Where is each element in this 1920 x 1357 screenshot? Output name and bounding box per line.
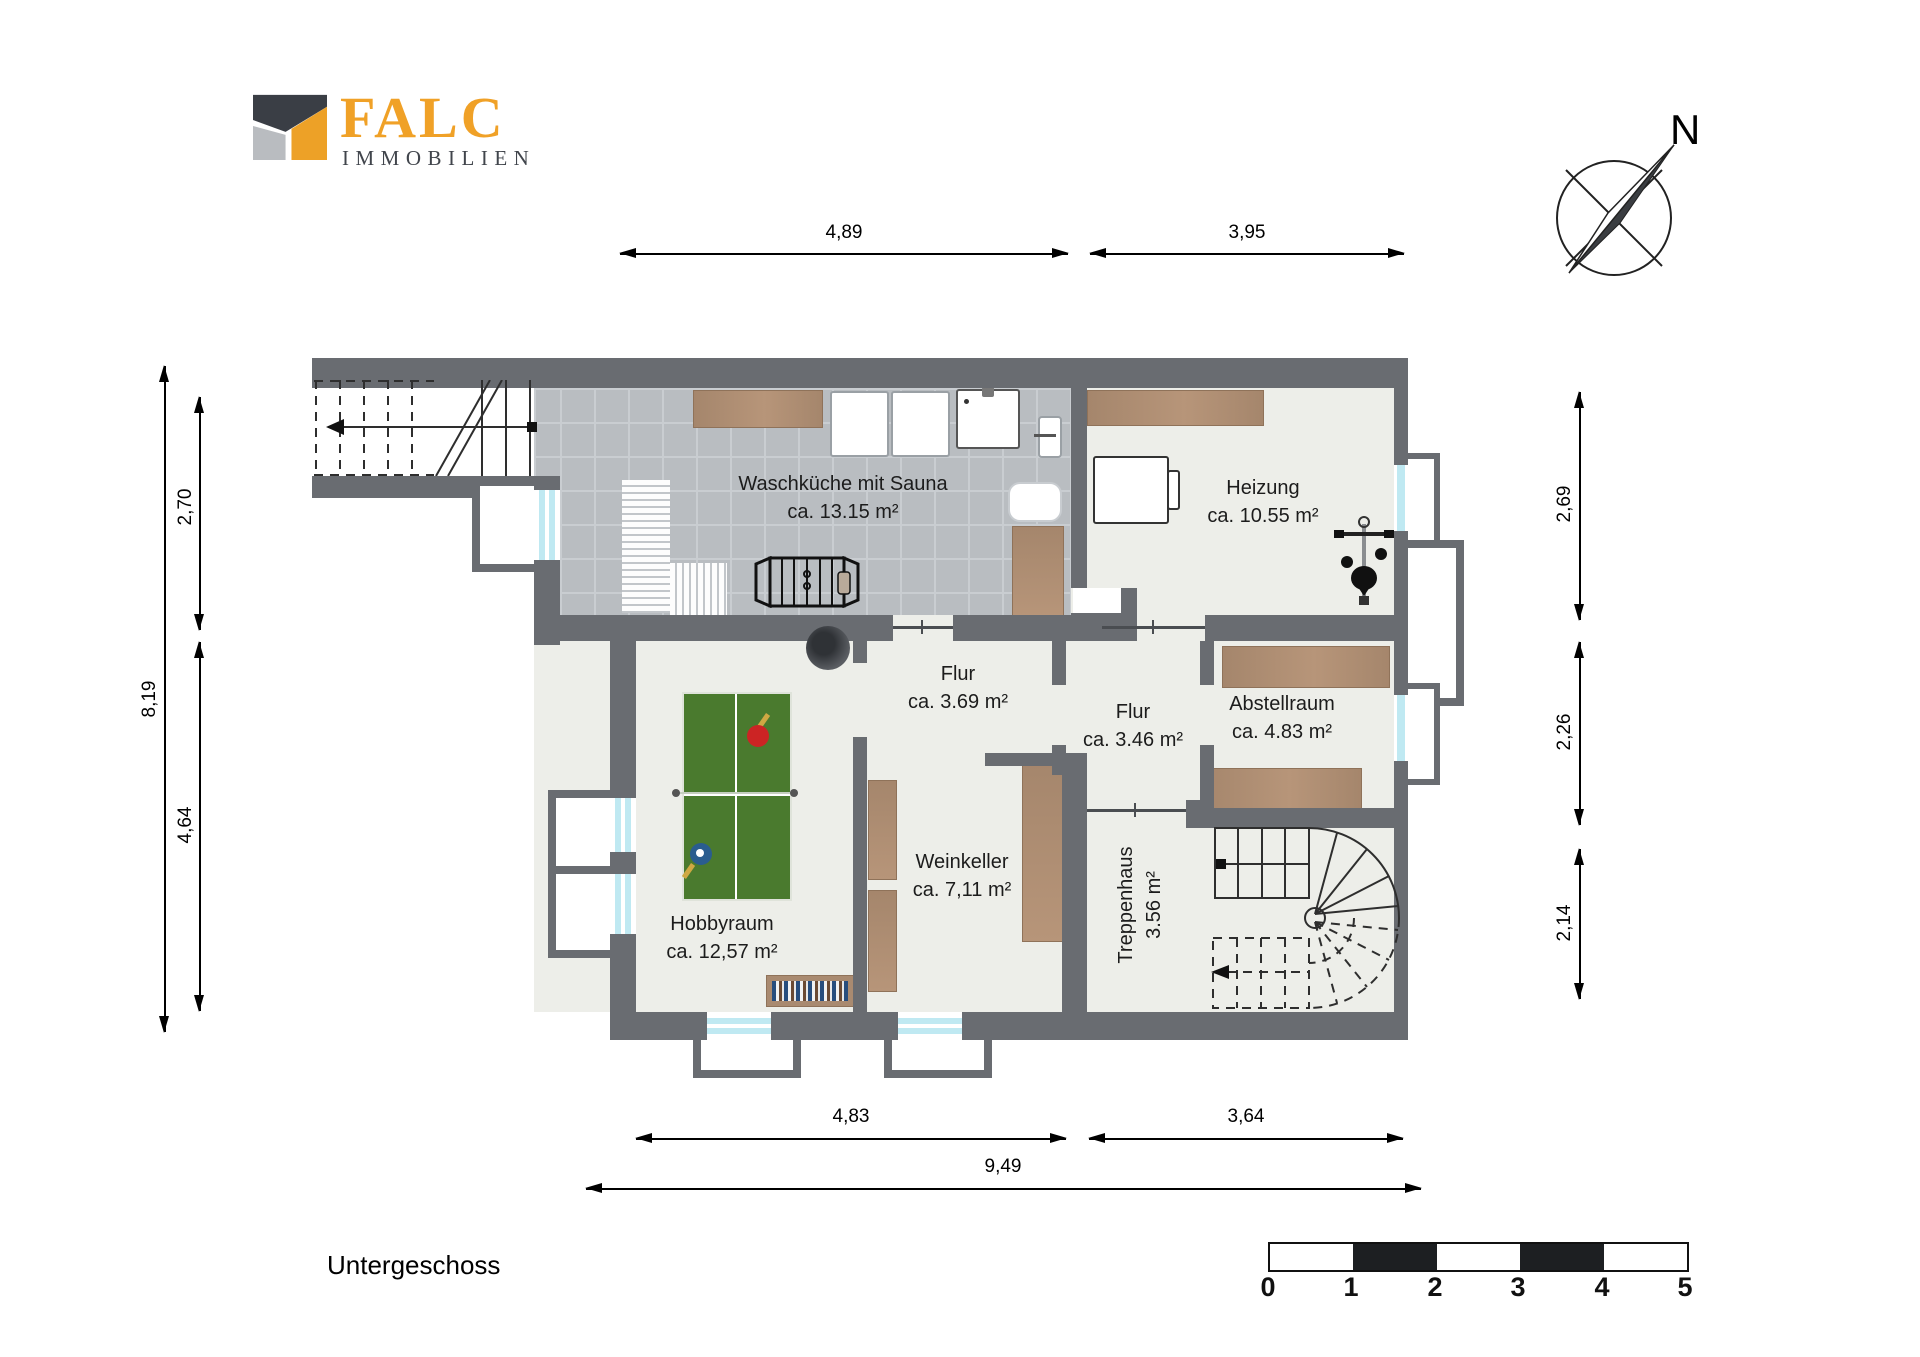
dim-label: 2,70 (175, 467, 197, 547)
room-area: ca. 4.83 m² (1192, 718, 1372, 746)
scale-bar (1268, 1242, 1689, 1272)
floor-title: Untergeschoss (327, 1250, 500, 1281)
laundry-counter (693, 390, 823, 428)
dim-label: 4,89 (794, 222, 894, 244)
radiator (670, 563, 727, 617)
handle-icon (1034, 434, 1056, 437)
scale-tick-label: 5 (1663, 1272, 1707, 1303)
chimney (806, 626, 850, 670)
table-tennis-net (672, 789, 798, 797)
scale-tick-label: 2 (1413, 1272, 1457, 1303)
door-hall-staircase (1087, 809, 1186, 812)
dim-label: 2,69 (1554, 464, 1576, 544)
radiator (622, 480, 670, 613)
window (1394, 695, 1408, 761)
dim-line-top-right (1090, 253, 1404, 255)
dim-label: 3,64 (1196, 1106, 1296, 1128)
wall-wine-right (1062, 753, 1087, 1012)
room-name: Treppenhaus (1112, 825, 1140, 985)
scale-segment (1270, 1244, 1353, 1270)
laundry-cabinet (1012, 526, 1064, 617)
books (772, 981, 848, 1001)
dim-label: 4,64 (175, 785, 197, 865)
room-area: ca. 7,11 m² (862, 876, 1062, 904)
drying-rack-icon (754, 556, 860, 608)
door-tick (1134, 803, 1136, 817)
winder-staircase-icon (1197, 822, 1403, 1014)
ball (696, 849, 704, 857)
dim-line-top-left (620, 253, 1068, 255)
wall-laundry-bottom (953, 615, 1087, 641)
room-label-flur-mitte: Flur ca. 3.46 m² (1058, 698, 1208, 754)
wall-wine-top (985, 753, 1062, 766)
wall-hobby-divider (853, 641, 867, 663)
door-hall-heating (1102, 626, 1205, 629)
room-area: ca. 12,57 m² (612, 938, 832, 966)
room-area: ca. 3.46 m² (1058, 726, 1208, 754)
window (707, 1012, 771, 1040)
wall-storage-left (1200, 641, 1214, 685)
room-area: ca. 13.15 m² (713, 498, 973, 526)
paddle-handle (682, 863, 695, 879)
wall-left-upper (534, 476, 560, 490)
scale-tick-label: 4 (1580, 1272, 1624, 1303)
room-label-heizung: Heizung ca. 10.55 m² (1163, 474, 1363, 530)
dim-label: 9,49 (953, 1156, 1053, 1178)
dim-label: 2,26 (1554, 692, 1576, 772)
paddle-face (747, 725, 769, 747)
dim-line-bottom-right (1089, 1138, 1403, 1140)
window-well (693, 1040, 801, 1078)
storage-shelf (1222, 646, 1390, 688)
drain-dot (964, 399, 969, 404)
room-label-waschkueche: Waschküche mit Sauna ca. 13.15 m² (713, 470, 973, 526)
window-well (1408, 683, 1440, 785)
room-name: Heizung (1163, 474, 1363, 502)
room-label-flur-oben: Flur ca. 3.69 m² (883, 660, 1033, 716)
window-well (548, 790, 610, 876)
dim-line-right-upper (1579, 392, 1581, 620)
dim-line-bottom-total (586, 1188, 1421, 1190)
red-paddle-icon (747, 717, 777, 747)
room-label-hobbyraum: Hobbyraum ca. 12,57 m² (612, 910, 832, 966)
door-laundry-hall (893, 626, 953, 629)
dim-label: 4,83 (801, 1106, 901, 1128)
room-area: ca. 3.69 m² (883, 688, 1033, 716)
washing-machine (830, 391, 889, 457)
room-name: Flur (1058, 698, 1208, 726)
room-label-weinkeller: Weinkeller ca. 7,11 m² (862, 848, 1062, 904)
dim-line-bottom-left (636, 1138, 1066, 1140)
scale-segment (1437, 1244, 1520, 1270)
faucet-icon (982, 387, 994, 397)
room-label-treppenhaus: Treppenhaus 3.56 m² (1112, 825, 1168, 985)
wall-hall-divider (1052, 641, 1066, 685)
net-post (790, 789, 798, 797)
room-name: Abstellraum (1192, 690, 1372, 718)
scale-segment (1353, 1244, 1436, 1270)
net-line (672, 792, 798, 794)
scale-segment (1604, 1244, 1687, 1270)
washing-machine (891, 391, 950, 457)
room-name: Hobbyraum (612, 910, 832, 938)
wall-storage-left (1200, 745, 1214, 808)
wall-basin (1038, 416, 1062, 458)
bookshelf (766, 975, 854, 1007)
wall-heating-bottom (1205, 615, 1394, 641)
dim-label: 3,95 (1197, 222, 1297, 244)
compass-north-label: N (1670, 106, 1700, 153)
floorplan-page: FALC IMMOBILIEN N (0, 0, 1920, 1357)
logo-wordmark: FALC (340, 84, 506, 151)
sink (956, 389, 1020, 449)
falc-logo-icon (253, 86, 327, 160)
wall-laundry-heating-divider (1071, 388, 1087, 588)
boiler (1093, 456, 1169, 524)
dim-line-left-lower (199, 642, 201, 1011)
window-well (548, 866, 610, 958)
dim-line-right-middle (1579, 642, 1581, 825)
compass-rose-icon: N (1552, 96, 1737, 281)
chimney-niche (1073, 588, 1121, 613)
net-post (672, 789, 680, 797)
window-well (472, 478, 534, 572)
room-area: 3.56 m² (1140, 825, 1168, 985)
room-name: Flur (883, 660, 1033, 688)
room-name: Weinkeller (862, 848, 1062, 876)
dim-line-left-total (164, 366, 166, 1032)
dim-label: 8,19 (139, 659, 161, 739)
logo-subtitle: IMMOBILIEN (342, 146, 535, 171)
window (610, 798, 636, 852)
door-tick (1152, 620, 1154, 634)
scale-tick-label: 3 (1496, 1272, 1540, 1303)
room-name: Waschküche mit Sauna (713, 470, 973, 498)
storage-shelf (1202, 768, 1362, 810)
room-label-abstellraum: Abstellraum ca. 4.83 m² (1192, 690, 1372, 746)
straight-staircase-icon (314, 380, 540, 476)
wall-niche-side (1121, 588, 1137, 613)
window (1394, 465, 1408, 531)
bench (1008, 482, 1062, 522)
heating-shelf (1087, 390, 1264, 426)
window-well (884, 1040, 992, 1078)
dim-line-right-lower (1579, 849, 1581, 999)
window (898, 1012, 962, 1040)
dim-line-left-upper (199, 397, 201, 630)
scale-segment (1520, 1244, 1603, 1270)
blue-paddle-icon (684, 843, 714, 877)
scale-tick-label: 1 (1329, 1272, 1373, 1303)
room-area: ca. 10.55 m² (1163, 502, 1363, 530)
window (534, 490, 560, 560)
light-well (1408, 540, 1464, 706)
dim-label: 2,14 (1554, 883, 1576, 963)
door-tick (921, 620, 923, 634)
scale-tick-label: 0 (1246, 1272, 1290, 1303)
wine-rack (868, 890, 897, 992)
